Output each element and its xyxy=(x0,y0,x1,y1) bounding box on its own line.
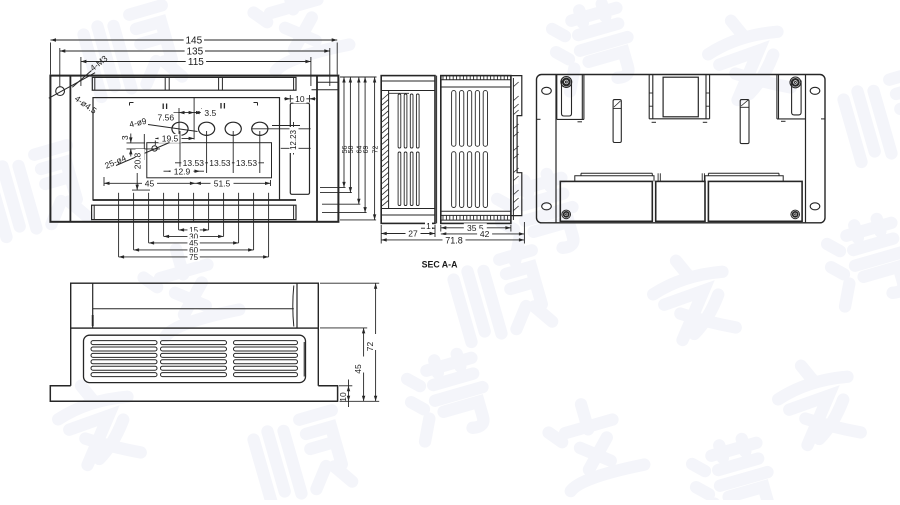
svg-text:71.8: 71.8 xyxy=(445,235,463,245)
svg-text:1: 1 xyxy=(426,221,431,231)
svg-text:45: 45 xyxy=(145,179,155,189)
svg-text:115: 115 xyxy=(188,57,204,68)
svg-text:SEC A-A: SEC A-A xyxy=(422,260,458,270)
svg-text:7.56: 7.56 xyxy=(158,113,175,123)
svg-text:135: 135 xyxy=(186,47,203,58)
svg-text:12.23: 12.23 xyxy=(289,129,298,150)
svg-text:20.8: 20.8 xyxy=(133,152,143,169)
svg-text:145: 145 xyxy=(186,36,203,47)
svg-text:10: 10 xyxy=(295,94,305,104)
svg-text:3: 3 xyxy=(120,135,130,140)
svg-text:12.9: 12.9 xyxy=(174,166,191,176)
svg-text:75: 75 xyxy=(189,253,198,262)
svg-text:45: 45 xyxy=(353,364,363,374)
svg-text:27: 27 xyxy=(408,229,418,239)
svg-text:13.53: 13.53 xyxy=(209,158,231,168)
svg-text:13.53: 13.53 xyxy=(236,158,258,168)
svg-text:42: 42 xyxy=(480,229,490,239)
svg-text:69: 69 xyxy=(363,146,370,154)
svg-text:3.5: 3.5 xyxy=(204,108,216,118)
svg-text:58: 58 xyxy=(348,146,355,154)
svg-text:51.5: 51.5 xyxy=(214,179,231,189)
svg-text:72: 72 xyxy=(372,146,379,154)
svg-text:10: 10 xyxy=(338,392,348,402)
svg-text:72: 72 xyxy=(365,342,375,352)
svg-text:19.5: 19.5 xyxy=(162,134,179,144)
